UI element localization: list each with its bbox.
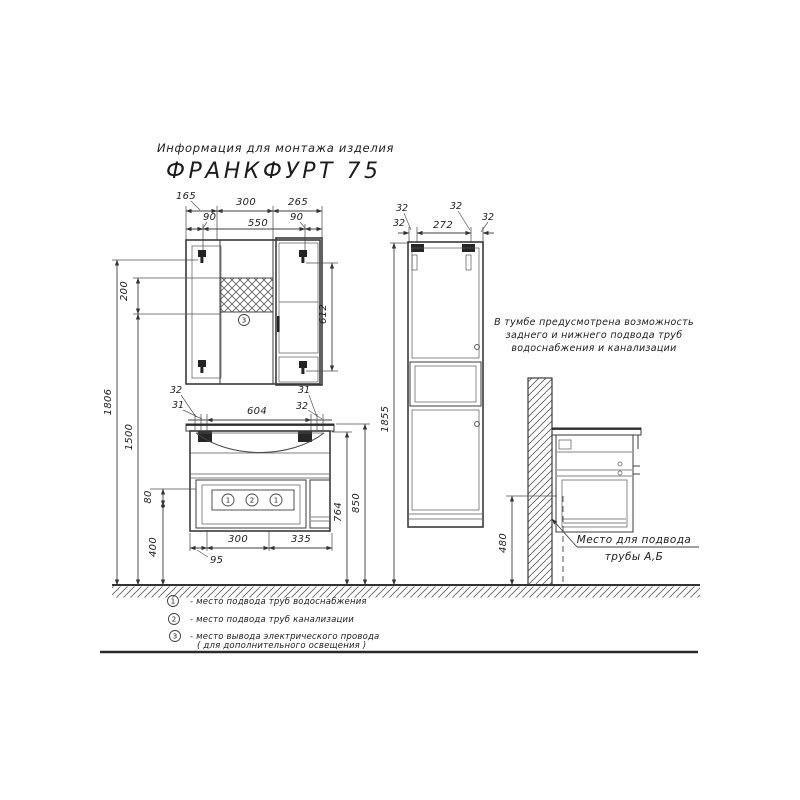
dim-label: 95 bbox=[210, 555, 223, 566]
legend: 1 - место подвода труб водоснабжения 2 -… bbox=[168, 596, 380, 652]
tall-open-shelf bbox=[410, 362, 481, 406]
dim-label: 32 bbox=[170, 385, 182, 396]
product-title: ФРАНКФУРТ 75 bbox=[166, 159, 381, 184]
tall-cabinet-body bbox=[408, 242, 483, 527]
dim-label: 764 bbox=[333, 502, 344, 522]
right-cupboard-door bbox=[279, 243, 318, 353]
installation-drawing: Информация для монтажа изделия ФРАНКФУРТ… bbox=[0, 0, 800, 800]
dim-label: 850 bbox=[351, 493, 362, 513]
side-vanity-body bbox=[556, 435, 633, 532]
hinge bbox=[466, 255, 471, 270]
marker-number: 2 bbox=[250, 497, 254, 505]
marker-number: 1 bbox=[226, 497, 230, 505]
legend-text-line2: ( для дополнительного освещения ) bbox=[197, 641, 366, 651]
hinge bbox=[412, 255, 417, 270]
dim-label: 265 bbox=[288, 197, 308, 208]
plug-icon bbox=[198, 250, 206, 263]
dim-label: 604 bbox=[247, 406, 267, 417]
legend-item-1: 1 - место подвода труб водоснабжения bbox=[168, 596, 367, 608]
plug-icon bbox=[198, 360, 206, 373]
plug-icon bbox=[299, 361, 307, 374]
dim-label: 400 bbox=[148, 537, 159, 557]
mirror-lamp-zone bbox=[220, 278, 273, 312]
pipe-callout: Место для подвода трубы А,Б bbox=[552, 519, 699, 563]
dim-label: 165 bbox=[176, 191, 196, 202]
vanity-body bbox=[190, 431, 330, 531]
tall-height-dim: 1855 bbox=[380, 243, 408, 585]
note-line-1: В тумбе предусмотрена возможность bbox=[494, 317, 694, 328]
callout-line-2: трубы А,Б bbox=[605, 551, 663, 563]
dim-label: 32 bbox=[482, 212, 494, 223]
dim-label: 1500 bbox=[124, 424, 135, 451]
ground-line bbox=[112, 585, 700, 598]
side-view: В тумбе предусмотрена возможность заднег… bbox=[494, 317, 699, 585]
dim-label: 335 bbox=[291, 534, 311, 545]
marker-number: 1 bbox=[274, 497, 278, 505]
dim-label: 80 bbox=[143, 490, 154, 503]
dim-label: 32 bbox=[450, 201, 462, 212]
marker-number: 3 bbox=[173, 633, 177, 641]
dim-label: 550 bbox=[248, 218, 268, 229]
right-cupboard-drawer bbox=[279, 357, 318, 382]
marker-number: 2 bbox=[172, 616, 176, 624]
side-drawer bbox=[562, 480, 627, 527]
legend-text: - место подвода труб канализации bbox=[190, 615, 354, 625]
dim-label: 200 bbox=[119, 281, 130, 301]
dim-label: 1806 bbox=[103, 389, 114, 416]
legend-text: - место подвода труб водоснабжения bbox=[190, 597, 367, 607]
marker-circle-3: 3 bbox=[239, 315, 250, 326]
mirror-left-dims: 1806 1500 200 bbox=[103, 260, 220, 585]
installation-drawing-sheet: Информация для монтажа изделия ФРАНКФУРТ… bbox=[0, 0, 800, 800]
legend-item-2: 2 - место подвода труб канализации bbox=[169, 614, 355, 626]
note-line-3: водоснабжения и канализации bbox=[511, 343, 676, 354]
dim-label: 32 bbox=[393, 218, 405, 229]
plug-icon bbox=[299, 250, 307, 263]
wall-section bbox=[528, 378, 552, 585]
door-handle bbox=[277, 316, 280, 332]
tall-lower-door bbox=[412, 410, 479, 510]
mirror-left-door bbox=[192, 246, 221, 378]
vanity-right-dims: 764 850 bbox=[332, 424, 370, 585]
vanity-left-dims: 80 400 bbox=[143, 489, 196, 585]
vanity-front-view: 32 31 604 31 32 1 2 1 bbox=[143, 385, 370, 585]
sheet-subtitle: Информация для монтажа изделия bbox=[157, 141, 394, 155]
dim-label: 612 bbox=[318, 304, 329, 324]
dim-label: 31 bbox=[172, 400, 184, 411]
dim-label: 480 bbox=[498, 533, 509, 553]
dim-label: 300 bbox=[228, 534, 248, 545]
dim-label: 300 bbox=[236, 197, 256, 208]
dim-label: 1855 bbox=[380, 406, 391, 433]
note-line-2: заднего и нижнего подвода труб bbox=[506, 330, 683, 341]
callout-line-1: Место для подвода bbox=[577, 534, 691, 546]
pipe-markers: 1 2 1 bbox=[222, 494, 282, 506]
dim-label: 32 bbox=[396, 203, 408, 214]
dim-label: 272 bbox=[433, 220, 453, 231]
dim-label: 31 bbox=[298, 385, 310, 396]
legend-item-3: 3 - место вывода электрического провода … bbox=[170, 631, 380, 652]
ground-hatch bbox=[112, 587, 700, 598]
marker-number: 1 bbox=[171, 598, 175, 606]
dim-label: 32 bbox=[296, 401, 308, 412]
tall-upper-door bbox=[412, 248, 479, 358]
dim-label: 90 bbox=[290, 212, 303, 223]
tall-cabinet-view: 32 32 272 32 32 1855 bbox=[380, 201, 494, 585]
dim-label: 90 bbox=[203, 212, 216, 223]
marker-number: 3 bbox=[242, 317, 246, 325]
header: Информация для монтажа изделия ФРАНКФУРТ… bbox=[157, 141, 394, 184]
vanity-bottom-dims: 300 335 95 bbox=[190, 530, 332, 566]
tall-top-dims: 32 32 272 32 32 bbox=[393, 201, 494, 243]
